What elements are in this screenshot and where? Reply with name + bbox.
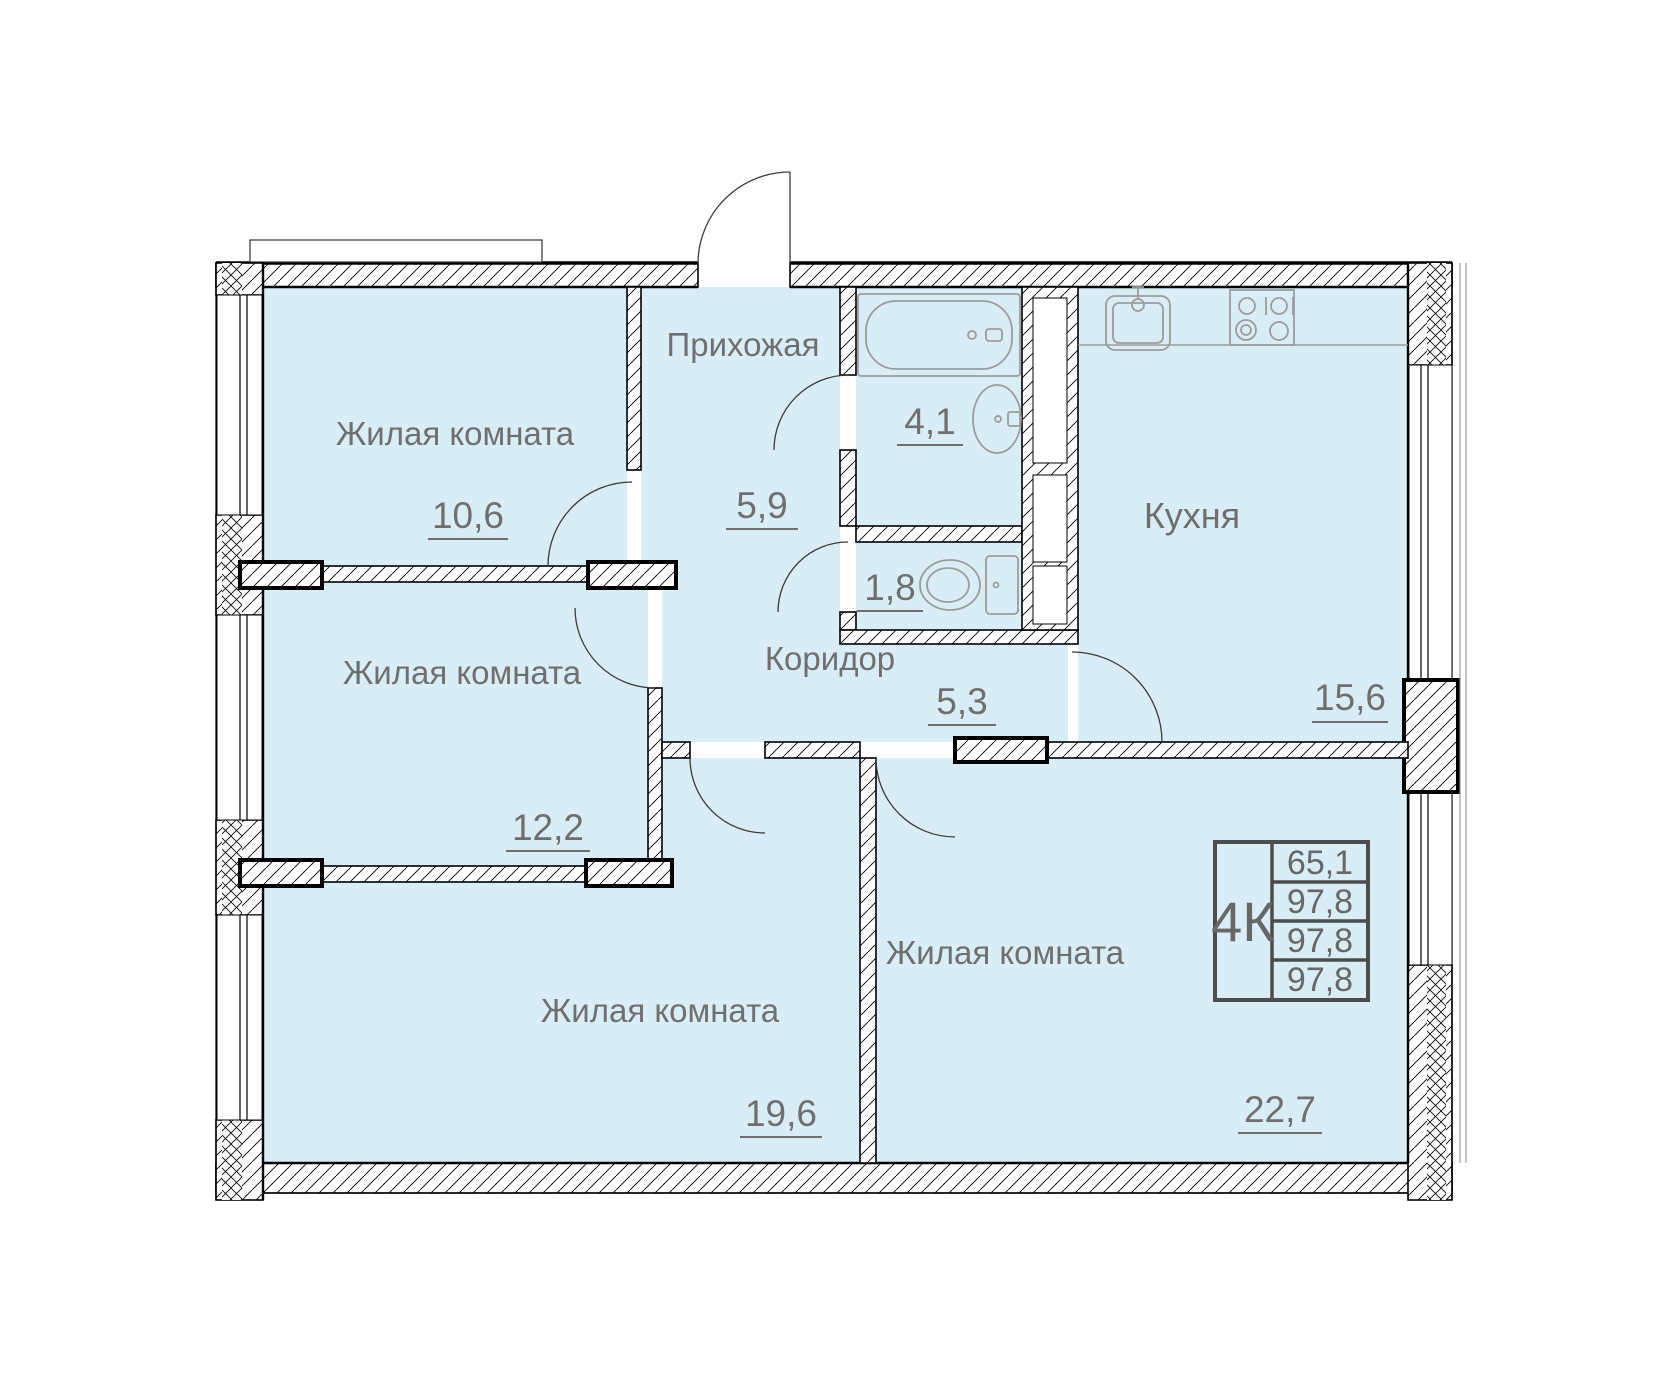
info-table-row-2: 97,8 xyxy=(1287,922,1353,960)
window-right-kitchen xyxy=(1409,365,1452,680)
lintel-block-4 xyxy=(586,860,672,886)
label-living-mid: Жилая комната xyxy=(343,654,582,691)
label-kitchen: Кухня xyxy=(1144,495,1240,536)
wall-bath-wc xyxy=(856,526,1022,542)
area-living-bottom-right: 22,7 xyxy=(1244,1089,1316,1130)
area-living-top: 10,6 xyxy=(432,495,504,536)
info-table-row-1: 97,8 xyxy=(1287,883,1353,921)
floorplan-canvas: Жилая комната 10,6 Прихожая 5,9 4,1 1,8 … xyxy=(0,0,1653,1382)
wall-kitchen-bottom xyxy=(1045,742,1408,758)
vent-shaft xyxy=(1022,287,1078,630)
entrance-door-arc xyxy=(698,172,790,264)
entrance-door xyxy=(698,172,790,264)
wall-living-divider xyxy=(860,758,876,1163)
room-living-mid-fill xyxy=(263,582,648,866)
info-table-row-0: 65,1 xyxy=(1287,844,1353,882)
info-table-row-3: 97,8 xyxy=(1287,961,1353,999)
label-living-top: Жилая комната xyxy=(336,415,575,452)
window-left-1 xyxy=(217,295,262,515)
wall-bottom xyxy=(216,1163,1452,1193)
wall-corridor-bottom-a xyxy=(662,742,690,758)
wall-living-mid-corridor xyxy=(648,688,662,882)
wall-right-pier-block xyxy=(1404,680,1458,792)
parapet-outline xyxy=(250,240,542,262)
lintel-block-1 xyxy=(240,562,322,588)
wall-top-left-segment xyxy=(216,263,698,287)
wall-living-top-hall xyxy=(627,287,641,470)
label-living-bottom-right: Жилая комната xyxy=(886,934,1125,971)
window-right-living xyxy=(1409,792,1452,965)
wall-hall-bath-a xyxy=(840,287,856,375)
wall-hall-bath-c xyxy=(840,612,856,630)
lintel-block-2 xyxy=(588,562,676,588)
floorplan-page: Жилая комната 10,6 Прихожая 5,9 4,1 1,8 … xyxy=(0,0,1653,1382)
info-table-type: 4К xyxy=(1211,890,1275,953)
lintel-block-5 xyxy=(955,738,1047,762)
wall-corridor-bottom-b xyxy=(765,742,860,758)
lintel-block-3 xyxy=(240,860,322,886)
area-corridor: 5,3 xyxy=(936,681,987,722)
area-kitchen: 15,6 xyxy=(1314,677,1386,718)
area-bathroom: 4,1 xyxy=(904,401,955,442)
window-left-3 xyxy=(217,915,262,1120)
wall-top-right-segment xyxy=(790,263,1452,287)
wall-hall-bath-b xyxy=(840,450,856,526)
area-living-mid: 12,2 xyxy=(512,807,584,848)
label-hallway: Прихожая xyxy=(667,326,820,363)
area-wc: 1,8 xyxy=(864,567,915,608)
area-hallway: 5,9 xyxy=(736,485,787,526)
label-corridor: Коридор xyxy=(765,640,895,677)
label-living-bottom-left: Жилая комната xyxy=(541,992,780,1029)
window-left-2 xyxy=(217,615,262,820)
room-kitchen-fill xyxy=(1078,287,1408,742)
area-living-bottom-left: 19,6 xyxy=(745,1093,817,1134)
